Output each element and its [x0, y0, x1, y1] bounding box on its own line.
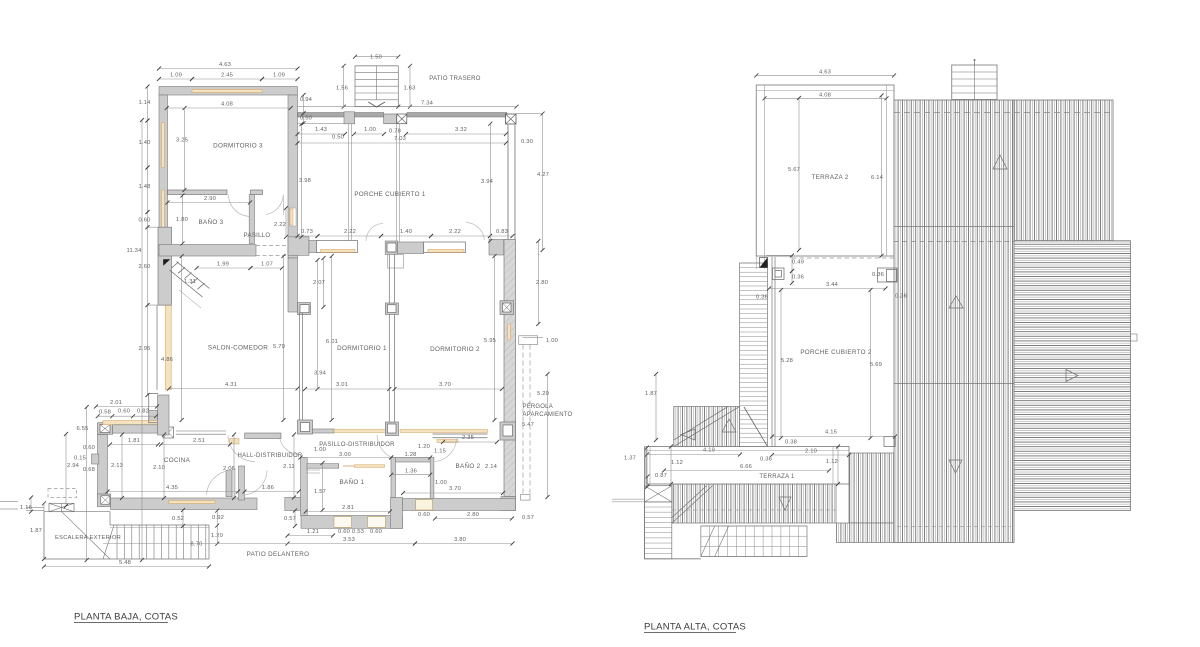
svg-text:0.87: 0.87 — [655, 473, 667, 479]
svg-text:0.30: 0.30 — [521, 139, 533, 145]
svg-text:1.00: 1.00 — [364, 127, 376, 133]
svg-text:4.35: 4.35 — [166, 485, 178, 491]
svg-text:0.73: 0.73 — [301, 229, 313, 235]
svg-text:3.94: 3.94 — [314, 371, 327, 377]
svg-text:1.99: 1.99 — [217, 262, 229, 268]
svg-text:11.34: 11.34 — [126, 248, 142, 254]
svg-text:4.08: 4.08 — [819, 93, 831, 99]
svg-text:2.01: 2.01 — [110, 400, 122, 406]
svg-text:4.31: 4.31 — [225, 382, 237, 388]
svg-text:2.06: 2.06 — [223, 466, 235, 472]
svg-text:7.03: 7.03 — [394, 136, 406, 142]
svg-text:3.32: 3.32 — [455, 127, 467, 133]
svg-text:BAÑO 1: BAÑO 1 — [340, 477, 365, 486]
svg-text:5.95: 5.95 — [484, 338, 496, 344]
svg-text:1.00: 1.00 — [546, 338, 558, 344]
svg-text:2.80: 2.80 — [536, 280, 548, 286]
svg-text:0.36: 0.36 — [872, 272, 884, 278]
svg-text:0.15: 0.15 — [74, 456, 86, 462]
svg-text:0.83: 0.83 — [496, 229, 508, 235]
svg-text:PORCHE CUBIERTO 2: PORCHE CUBIERTO 2 — [800, 349, 872, 356]
svg-text:1.37: 1.37 — [624, 456, 636, 462]
svg-text:4.27: 4.27 — [537, 172, 549, 178]
svg-text:4.15: 4.15 — [825, 430, 837, 436]
svg-text:SALON-COMEDOR: SALON-COMEDOR — [208, 345, 268, 352]
svg-text:1.28: 1.28 — [404, 452, 416, 458]
svg-text:7.34: 7.34 — [421, 101, 434, 107]
svg-text:2.35: 2.35 — [462, 435, 474, 441]
svg-text:HALL-DISTRIBUIDOR: HALL-DISTRIBUIDOR — [237, 453, 302, 459]
svg-text:0.60: 0.60 — [138, 218, 150, 224]
svg-text:1.40: 1.40 — [138, 140, 150, 146]
svg-text:2.14: 2.14 — [485, 464, 498, 470]
svg-text:0.60: 0.60 — [83, 445, 95, 451]
svg-text:1.50: 1.50 — [370, 55, 382, 61]
svg-text:5.79: 5.79 — [273, 344, 285, 350]
svg-text:1.12: 1.12 — [826, 459, 838, 465]
svg-text:1.48: 1.48 — [138, 184, 150, 190]
svg-text:0.60: 0.60 — [418, 512, 430, 518]
svg-text:2.13: 2.13 — [111, 463, 123, 469]
svg-text:PLANTA BAJA, COTAS: PLANTA BAJA, COTAS — [74, 612, 178, 623]
svg-text:1.09: 1.09 — [273, 73, 285, 79]
svg-text:3.70: 3.70 — [439, 382, 451, 388]
svg-text:5.48: 5.48 — [119, 560, 131, 566]
svg-text:PASILLO-DISTRIBUIDOR: PASILLO-DISTRIBUIDOR — [319, 442, 395, 448]
svg-text:1.57: 1.57 — [314, 489, 326, 495]
svg-text:PORCHE CUBIERTO 1: PORCHE CUBIERTO 1 — [354, 191, 426, 198]
svg-text:APARCAMIENTO: APARCAMIENTO — [523, 412, 573, 418]
svg-text:3.94: 3.94 — [481, 179, 494, 185]
svg-text:0.36: 0.36 — [895, 294, 907, 300]
svg-text:0.50: 0.50 — [300, 116, 312, 122]
svg-text:4.08: 4.08 — [221, 102, 233, 108]
svg-text:1.43: 1.43 — [315, 127, 327, 133]
svg-text:0.36: 0.36 — [792, 275, 804, 281]
svg-text:1.00: 1.00 — [435, 480, 447, 486]
svg-text:0.49: 0.49 — [792, 260, 804, 266]
svg-text:BAÑO 3: BAÑO 3 — [199, 217, 224, 226]
svg-text:3.44: 3.44 — [826, 282, 839, 288]
svg-text:2.80: 2.80 — [467, 512, 479, 518]
svg-text:1.09: 1.09 — [170, 73, 182, 79]
svg-text:3.53: 3.53 — [343, 537, 355, 543]
svg-text:DORMITORIO 1: DORMITORIO 1 — [337, 345, 387, 352]
svg-text:1.36: 1.36 — [405, 469, 417, 475]
svg-text:1.81: 1.81 — [128, 438, 140, 444]
svg-text:1.63: 1.63 — [403, 86, 415, 92]
svg-text:5.20: 5.20 — [537, 391, 549, 397]
svg-text:8.70: 8.70 — [190, 542, 202, 548]
svg-text:3.70: 3.70 — [449, 486, 461, 492]
svg-text:1.21: 1.21 — [307, 529, 319, 535]
svg-text:PATIO TRASERO: PATIO TRASERO — [429, 76, 481, 82]
svg-text:0.36: 0.36 — [756, 295, 768, 301]
svg-text:1.86: 1.86 — [262, 485, 274, 491]
svg-text:PASILLO: PASILLO — [244, 233, 271, 239]
svg-text:1.07: 1.07 — [261, 262, 273, 268]
svg-text:4.63: 4.63 — [819, 70, 831, 76]
svg-text:0.53: 0.53 — [352, 529, 364, 535]
svg-text:6.66: 6.66 — [740, 464, 752, 470]
svg-text:5.28: 5.28 — [781, 358, 793, 364]
svg-text:5.69: 5.69 — [870, 362, 882, 368]
svg-text:2.11: 2.11 — [283, 464, 295, 470]
svg-text:3.01: 3.01 — [336, 382, 348, 388]
svg-text:3.25: 3.25 — [176, 138, 188, 144]
svg-text:4.19: 4.19 — [703, 448, 715, 454]
svg-text:0.82: 0.82 — [137, 409, 149, 415]
svg-text:1.12: 1.12 — [671, 460, 683, 466]
svg-text:3.00: 3.00 — [339, 452, 351, 458]
svg-text:2.07: 2.07 — [313, 280, 325, 286]
svg-text:PLANTA ALTA, COTAS: PLANTA ALTA, COTAS — [644, 622, 746, 633]
svg-text:1.87: 1.87 — [645, 391, 657, 397]
svg-text:0.57: 0.57 — [522, 515, 534, 521]
svg-text:PATIO DELANTERO: PATIO DELANTERO — [247, 551, 310, 558]
svg-text:1.40: 1.40 — [400, 229, 412, 235]
svg-text:0.78: 0.78 — [389, 129, 401, 135]
svg-text:1.56: 1.56 — [336, 86, 348, 92]
svg-text:1.31: 1.31 — [184, 279, 196, 285]
svg-text:ESCALERA EXTERIOR: ESCALERA EXTERIOR — [55, 535, 121, 541]
svg-text:4.86: 4.86 — [161, 357, 173, 363]
svg-text:6.14: 6.14 — [871, 175, 884, 181]
svg-text:2.10: 2.10 — [153, 465, 165, 471]
svg-text:6.55: 6.55 — [76, 426, 88, 432]
svg-text:1.87: 1.87 — [30, 528, 42, 534]
svg-text:0.60: 0.60 — [118, 409, 130, 415]
svg-text:1.14: 1.14 — [138, 100, 151, 106]
svg-text:1.15: 1.15 — [434, 449, 446, 455]
svg-text:2.94: 2.94 — [67, 463, 80, 469]
svg-text:0.36: 0.36 — [760, 457, 772, 463]
svg-text:2.51: 2.51 — [193, 438, 205, 444]
svg-text:0.52: 0.52 — [172, 516, 184, 522]
svg-text:DORMITORIO 3: DORMITORIO 3 — [213, 143, 263, 150]
svg-text:0.50: 0.50 — [332, 135, 344, 141]
svg-text:0.60: 0.60 — [338, 529, 350, 535]
svg-text:BAÑO 2: BAÑO 2 — [456, 461, 481, 470]
svg-text:0.38: 0.38 — [785, 440, 797, 446]
svg-text:2.81: 2.81 — [342, 505, 354, 511]
svg-text:2.95: 2.95 — [138, 346, 150, 352]
svg-text:0.68: 0.68 — [83, 467, 95, 473]
svg-text:3.80: 3.80 — [454, 537, 466, 543]
svg-text:5.67: 5.67 — [788, 167, 800, 173]
svg-text:TERRAZA 1: TERRAZA 1 — [759, 474, 795, 480]
svg-text:0.57: 0.57 — [284, 516, 296, 522]
svg-text:2.22: 2.22 — [449, 229, 461, 235]
svg-text:2.60: 2.60 — [138, 264, 150, 270]
svg-text:2.10: 2.10 — [805, 449, 817, 455]
svg-text:DORMITORIO 2: DORMITORIO 2 — [430, 346, 480, 353]
svg-text:PÉRGOLA: PÉRGOLA — [523, 403, 553, 410]
svg-text:TERRAZA 2: TERRAZA 2 — [812, 174, 849, 181]
svg-text:COCINA: COCINA — [164, 457, 191, 464]
svg-text:1.80: 1.80 — [176, 217, 188, 223]
svg-text:0.58: 0.58 — [99, 410, 111, 416]
svg-text:2.22: 2.22 — [274, 222, 286, 228]
svg-text:1.16: 1.16 — [20, 505, 32, 511]
svg-text:2.90: 2.90 — [204, 196, 216, 202]
svg-text:0.94: 0.94 — [300, 97, 313, 103]
svg-text:2.45: 2.45 — [221, 73, 233, 79]
svg-text:5.47: 5.47 — [522, 422, 534, 428]
svg-text:0.92: 0.92 — [212, 515, 224, 521]
svg-text:0.60: 0.60 — [370, 529, 382, 535]
svg-text:3.98: 3.98 — [299, 178, 311, 184]
svg-text:1.20: 1.20 — [418, 444, 430, 450]
svg-text:4.63: 4.63 — [219, 62, 231, 68]
svg-text:2.22: 2.22 — [344, 229, 356, 235]
